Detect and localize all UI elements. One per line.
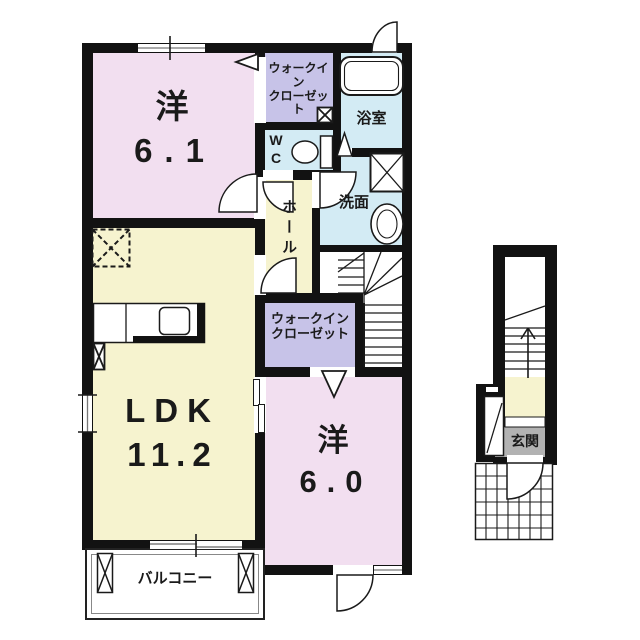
label-bedroom2: 洋 6.0 — [286, 423, 386, 499]
label-bathroom: 浴室 — [341, 110, 402, 127]
label-bedroom1: 洋 6.1 — [100, 88, 250, 170]
marker-bath-door — [337, 133, 352, 156]
label-ldk: LDK 11.2 — [95, 392, 250, 474]
floor-plan: 洋 6.1 LDK 11.2 洋 6.0 ウォークイン クローゼット ウォークイ… — [0, 0, 640, 640]
bedroom1-area: 6.1 — [100, 132, 250, 170]
entrance-porch-grid — [476, 463, 553, 540]
kitchen-counter-icon — [94, 303, 206, 343]
entrance-step — [505, 417, 545, 427]
wic-lower-line2: クローゼット — [265, 327, 355, 342]
sliding-door-balcony — [150, 534, 242, 557]
balcony-hatch-left — [98, 554, 113, 593]
label-entrance: 玄関 — [504, 433, 546, 449]
label-wic-upper: ウォークイン クローゼット — [263, 62, 334, 117]
main-stairs — [338, 252, 402, 367]
label-washroom: 洗面 — [331, 194, 377, 211]
toilet-icon — [292, 136, 333, 168]
window-bedroom2-bottom — [374, 566, 402, 574]
door-bedroom1 — [219, 174, 257, 212]
window-top — [138, 36, 205, 60]
bathtub-icon — [340, 57, 403, 95]
bedroom1-name: 洋 — [100, 88, 250, 126]
label-balcony: バルコニー — [115, 570, 235, 587]
door-bedroom2-exterior — [337, 575, 373, 611]
wic-lower-line1: ウォークイン — [265, 312, 355, 327]
wic-upper-line2: クローゼット — [263, 90, 334, 118]
marker-wic1-opening — [236, 54, 258, 70]
label-hall: ホール — [271, 184, 297, 274]
ldk-area: 11.2 — [95, 436, 250, 474]
entrance-stairs — [505, 306, 545, 378]
wc-line2: C — [267, 150, 285, 168]
label-wc: W C — [267, 132, 285, 167]
wc-line1: W — [267, 132, 285, 150]
entrance-bay-window — [485, 387, 504, 456]
bedroom2-name: 洋 — [286, 423, 386, 459]
stairs-up-arrow — [521, 328, 535, 378]
door-top-exterior — [372, 22, 397, 52]
label-wic-lower: ウォークイン クローゼット — [265, 312, 355, 342]
sliding-leaves-ldk-bedroom2 — [254, 380, 265, 433]
bedroom2-area: 6.0 — [286, 464, 386, 500]
balcony-hatch-right — [239, 554, 254, 593]
fridge-space-icon — [93, 230, 130, 267]
ldk-name: LDK — [95, 392, 250, 430]
washer-pan-icon — [371, 154, 404, 192]
marker-wic2-opening — [322, 371, 346, 397]
wic-upper-line1: ウォークイン — [263, 62, 334, 90]
pipe-space-icon — [94, 344, 105, 370]
